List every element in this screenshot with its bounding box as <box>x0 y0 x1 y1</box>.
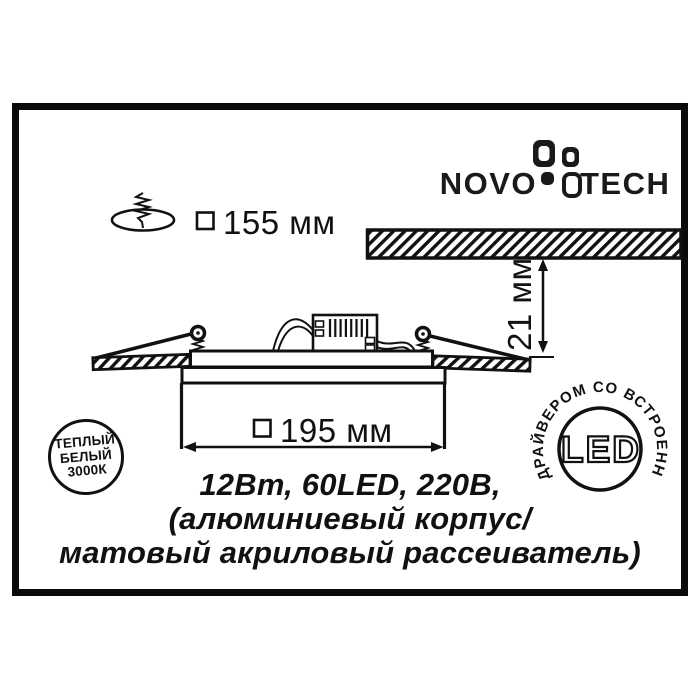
fixture-top-plate <box>191 351 433 367</box>
ceiling-hatch <box>368 230 682 258</box>
badge-line-3: 3000К <box>67 463 107 481</box>
depth-dimension-label: 21 мм <box>503 261 537 351</box>
square-symbol-width <box>254 420 271 437</box>
driver-box <box>273 315 415 352</box>
spec-line-1: 12Вт, 60LED, 220В, <box>50 468 650 502</box>
logo-text-left: NOVO <box>440 166 537 201</box>
cutout-dimension-label: 155 мм <box>223 204 336 242</box>
width-dimension-label: 195 мм <box>280 412 393 450</box>
spec-line-3: матовый акриловый рассеиватель) <box>50 536 650 570</box>
logo-flower-icon <box>533 140 580 196</box>
product-diagram: NOVO TECH ДРАЙВЕРОМ СО ВСТРОЕННЫМ LED <box>0 0 700 700</box>
badge-led-text: LED <box>561 429 641 470</box>
fixture-trim-ring <box>182 368 445 384</box>
technical-drawing: NOVO TECH ДРАЙВЕРОМ СО ВСТРОЕННЫМ LED <box>0 0 700 700</box>
novotech-logo: NOVO TECH <box>440 140 671 201</box>
logo-text-right: TECH <box>580 166 670 201</box>
spec-text: 12Вт, 60LED, 220В, (алюминиевый корпус/ … <box>50 468 650 570</box>
square-symbol-cutout <box>197 213 214 230</box>
screw-in-hole-icon <box>112 193 174 231</box>
spec-line-2: (алюминиевый корпус/ <box>50 502 650 536</box>
